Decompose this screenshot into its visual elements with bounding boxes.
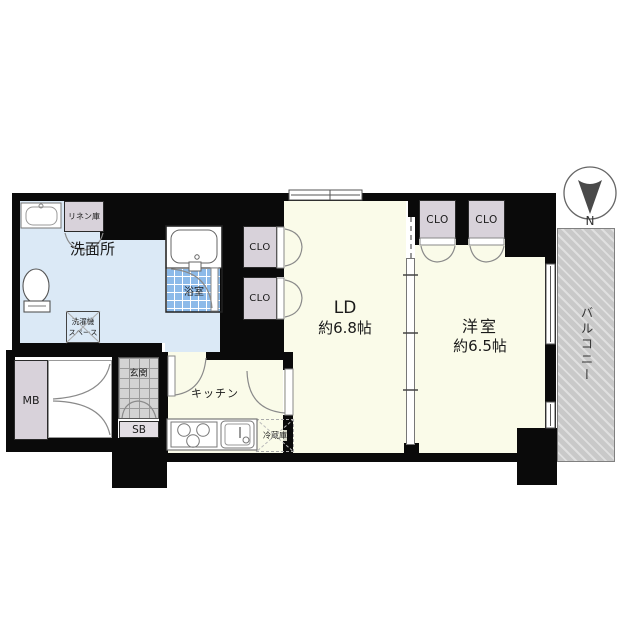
closet-box-1: CLO	[243, 226, 277, 268]
compass-icon	[564, 167, 616, 219]
wall-segment	[276, 268, 284, 277]
closet-box-4: CLO	[468, 200, 505, 239]
western-room-label: 洋室 約6.5帖	[415, 310, 545, 362]
linen-closet-box: リネン庫	[64, 201, 104, 232]
floor-plan: バルコニー リネン庫 CLO CLO CLO CLO MB SB	[0, 0, 640, 640]
balcony-area: バルコニー	[557, 228, 615, 462]
wall-segment	[100, 196, 170, 240]
wall-segment	[276, 318, 284, 354]
western-room-name: 洋室	[462, 317, 498, 337]
wall-segment	[206, 352, 283, 360]
entrance-label: 玄関	[118, 368, 159, 382]
kitchen-door-gap-floor	[168, 352, 206, 360]
storage-room	[48, 360, 112, 438]
ld-name: LD	[334, 298, 357, 319]
wall-segment	[276, 196, 284, 242]
meter-box: MB	[14, 360, 48, 440]
wall-segment	[517, 428, 557, 485]
kitchen-label: キッチン	[157, 386, 273, 401]
sliding-partition	[406, 258, 415, 445]
closet-label: CLO	[426, 214, 449, 226]
closet-box-2: CLO	[243, 277, 277, 320]
bathroom-label: 浴室	[166, 286, 222, 300]
meter-box-label: MB	[22, 394, 39, 407]
wall-segment	[12, 343, 162, 357]
fridge-space-box: 冷蔵庫	[256, 419, 294, 452]
closet-label: CLO	[475, 214, 498, 226]
wall-segment	[545, 193, 556, 463]
wall-segment	[456, 193, 468, 245]
wall-segment	[283, 352, 293, 370]
ld-size: 約6.8帖	[318, 319, 372, 338]
shoe-box-label: SB	[132, 424, 146, 436]
laundry-space-box: 洗濯機 スペース	[66, 311, 100, 343]
closet-label: CLO	[249, 293, 271, 304]
wall-segment	[159, 453, 557, 462]
western-room-size: 約6.5帖	[453, 337, 507, 356]
laundry-label-line1: 洗濯機	[72, 316, 95, 327]
wall-segment	[220, 196, 243, 353]
laundry-label-line2: スペース	[68, 327, 97, 338]
wall-segment	[404, 443, 419, 462]
compass-north-label: N	[562, 213, 618, 229]
wall-segment	[6, 438, 116, 452]
wall-segment	[12, 193, 20, 350]
wall-segment	[165, 196, 223, 228]
closet-label: CLO	[249, 242, 271, 253]
ld-label: LD 約6.8帖	[284, 294, 406, 342]
fridge-label: 冷蔵庫	[263, 430, 287, 441]
washroom-label: 洗面所	[20, 238, 165, 260]
balcony-label: バルコニー	[577, 306, 596, 384]
closet-box-3: CLO	[419, 200, 456, 239]
wall-segment	[159, 352, 168, 462]
wall-segment	[408, 193, 419, 217]
entrance-tile-floor	[118, 357, 159, 419]
shoe-box: SB	[119, 421, 159, 438]
hall-passage-floor	[165, 312, 220, 352]
linen-closet-label: リネン庫	[68, 212, 100, 222]
